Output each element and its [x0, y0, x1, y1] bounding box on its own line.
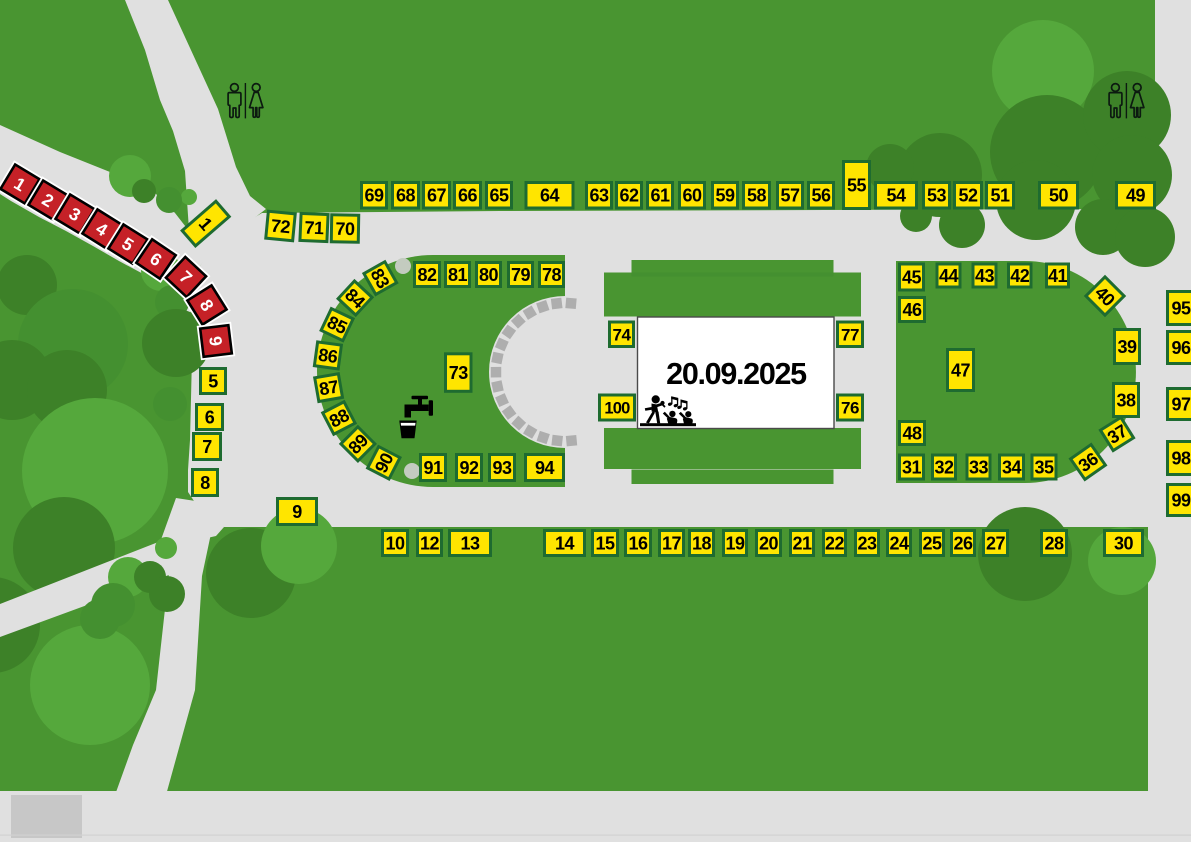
svg-text:20: 20	[759, 533, 779, 553]
svg-text:23: 23	[857, 533, 877, 553]
svg-text:6: 6	[205, 407, 215, 427]
svg-text:76: 76	[841, 399, 859, 418]
svg-text:69: 69	[364, 186, 384, 206]
svg-text:9: 9	[292, 502, 302, 522]
svg-text:97: 97	[1171, 394, 1191, 414]
svg-text:66: 66	[458, 186, 478, 206]
svg-text:44: 44	[939, 266, 959, 286]
svg-text:24: 24	[889, 533, 909, 553]
svg-text:73: 73	[449, 363, 469, 383]
svg-text:79: 79	[511, 265, 531, 285]
svg-text:100: 100	[604, 399, 630, 417]
svg-text:81: 81	[448, 265, 468, 285]
svg-text:72: 72	[270, 216, 291, 238]
svg-text:18: 18	[692, 533, 712, 553]
svg-text:61: 61	[650, 186, 670, 206]
svg-text:62: 62	[619, 186, 639, 206]
svg-text:82: 82	[417, 265, 437, 285]
svg-text:70: 70	[335, 219, 355, 239]
svg-text:92: 92	[459, 458, 479, 478]
svg-text:50: 50	[1049, 186, 1069, 206]
svg-text:48: 48	[902, 423, 922, 443]
svg-text:17: 17	[662, 533, 682, 553]
svg-text:12: 12	[420, 533, 440, 553]
svg-text:10: 10	[385, 533, 405, 553]
svg-text:51: 51	[990, 186, 1010, 206]
svg-text:8: 8	[200, 473, 210, 493]
svg-text:28: 28	[1044, 533, 1064, 553]
svg-text:20.09.2025: 20.09.2025	[666, 357, 807, 391]
svg-text:93: 93	[492, 458, 512, 478]
svg-text:45: 45	[902, 267, 922, 287]
svg-text:46: 46	[902, 300, 922, 320]
svg-text:52: 52	[958, 186, 978, 206]
svg-text:19: 19	[725, 533, 745, 553]
svg-text:67: 67	[427, 186, 447, 206]
svg-text:65: 65	[489, 186, 509, 206]
svg-text:68: 68	[396, 186, 416, 206]
svg-text:31: 31	[902, 457, 922, 477]
svg-text:32: 32	[934, 457, 954, 477]
svg-text:39: 39	[1117, 337, 1137, 357]
svg-text:14: 14	[555, 533, 575, 553]
svg-text:21: 21	[792, 533, 812, 553]
svg-text:54: 54	[886, 186, 906, 206]
svg-text:42: 42	[1010, 266, 1030, 286]
svg-text:26: 26	[953, 533, 973, 553]
svg-text:7: 7	[202, 437, 212, 457]
svg-text:59: 59	[715, 186, 735, 206]
svg-text:98: 98	[1171, 448, 1191, 468]
svg-text:38: 38	[1116, 390, 1136, 410]
svg-text:27: 27	[986, 533, 1006, 553]
svg-text:57: 57	[780, 186, 800, 206]
svg-text:77: 77	[841, 325, 859, 344]
svg-text:47: 47	[951, 360, 971, 380]
svg-text:64: 64	[540, 186, 560, 206]
svg-text:13: 13	[460, 533, 480, 553]
svg-text:22: 22	[825, 533, 845, 553]
svg-text:33: 33	[969, 457, 989, 477]
svg-text:55: 55	[847, 175, 867, 195]
svg-text:96: 96	[1171, 338, 1191, 358]
svg-text:80: 80	[479, 265, 499, 285]
svg-text:16: 16	[628, 533, 648, 553]
svg-text:30: 30	[1114, 533, 1134, 553]
svg-text:34: 34	[1002, 457, 1022, 477]
svg-text:60: 60	[682, 186, 702, 206]
svg-text:78: 78	[542, 265, 562, 285]
svg-text:71: 71	[304, 217, 324, 238]
svg-text:25: 25	[922, 533, 942, 553]
svg-text:74: 74	[613, 325, 632, 344]
svg-text:94: 94	[535, 458, 555, 478]
svg-text:99: 99	[1171, 490, 1191, 510]
svg-text:43: 43	[975, 266, 995, 286]
svg-text:15: 15	[595, 533, 615, 553]
svg-text:86: 86	[317, 345, 339, 367]
svg-text:87: 87	[318, 376, 341, 399]
svg-text:53: 53	[927, 186, 947, 206]
svg-text:41: 41	[1048, 266, 1068, 286]
svg-text:58: 58	[747, 186, 767, 206]
svg-text:49: 49	[1126, 186, 1146, 206]
svg-text:5: 5	[208, 371, 218, 391]
svg-text:91: 91	[423, 458, 443, 478]
svg-text:95: 95	[1171, 298, 1191, 318]
svg-text:63: 63	[589, 186, 609, 206]
svg-text:56: 56	[811, 186, 831, 206]
svg-text:35: 35	[1034, 457, 1054, 477]
